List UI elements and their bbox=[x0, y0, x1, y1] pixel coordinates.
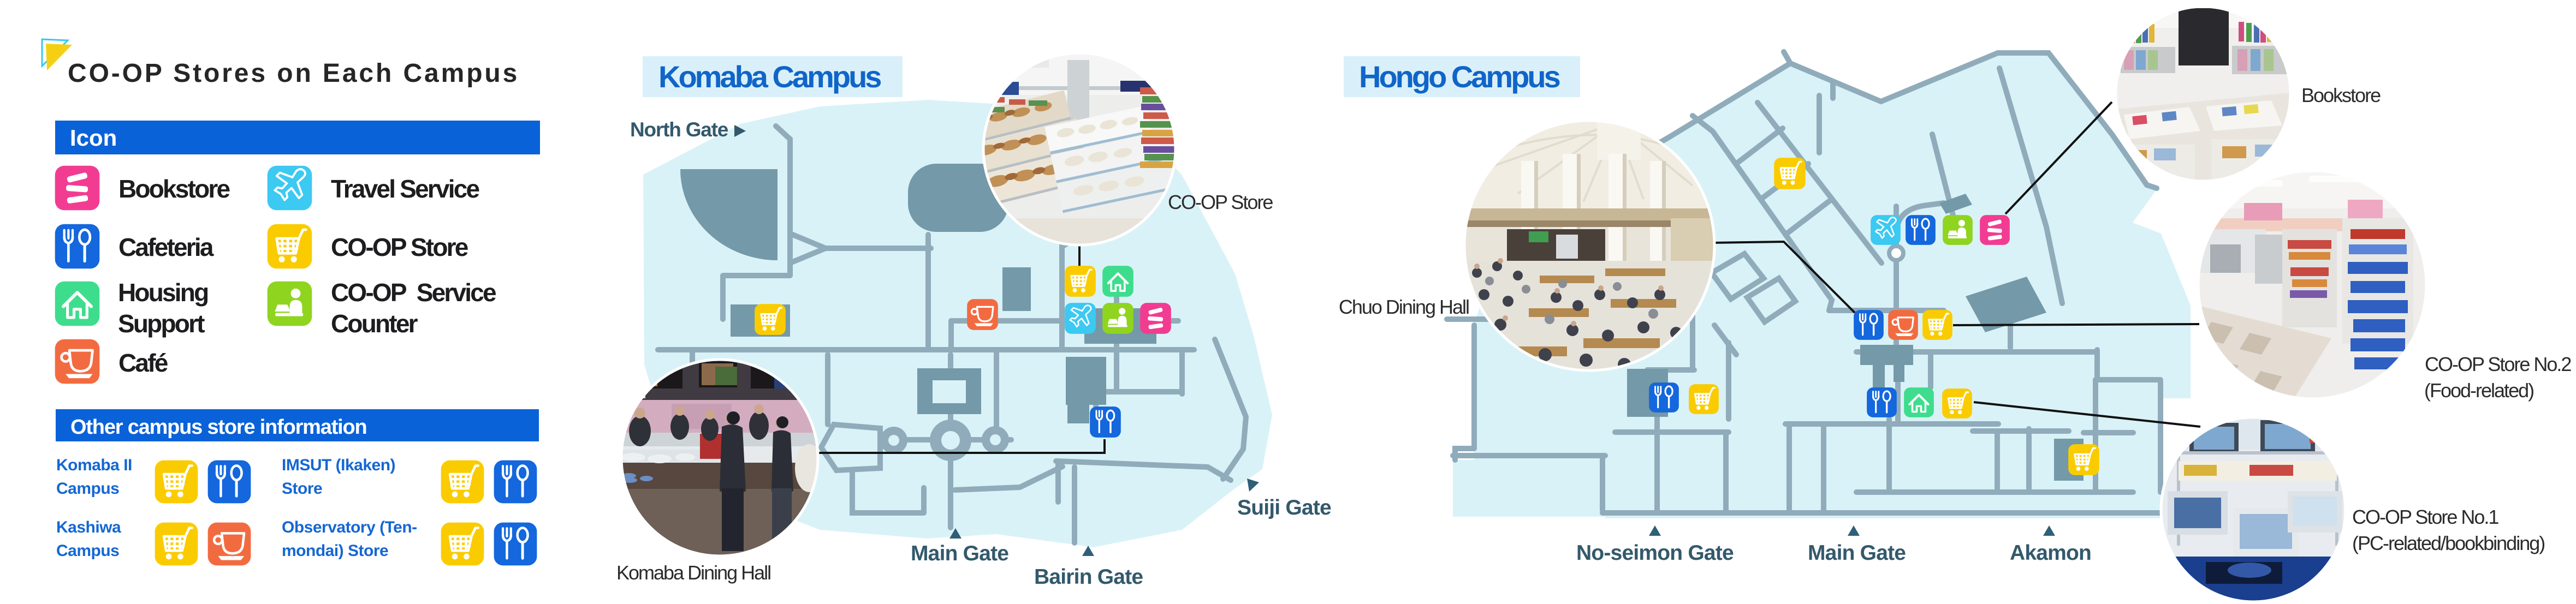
svg-text:CO-OP Store No.2: CO-OP Store No.2 bbox=[2425, 353, 2571, 375]
svg-text:Café: Café bbox=[118, 349, 168, 377]
svg-text:Observatory (Ten-: Observatory (Ten- bbox=[282, 518, 417, 536]
svg-text:Support: Support bbox=[118, 309, 205, 338]
svg-text:Main Gate: Main Gate bbox=[911, 542, 1008, 565]
svg-text:CO-OP Stores on Each Campus: CO-OP Stores on Each Campus bbox=[68, 59, 519, 88]
svg-text:CO-OP Store No.1: CO-OP Store No.1 bbox=[2352, 506, 2498, 528]
svg-text:Other campus store information: Other campus store information bbox=[70, 416, 367, 439]
svg-text:Store: Store bbox=[282, 480, 322, 498]
svg-text:Suiji Gate: Suiji Gate bbox=[1237, 496, 1331, 519]
svg-text:No-seimon Gate: No-seimon Gate bbox=[1576, 541, 1734, 565]
svg-text:North Gate: North Gate bbox=[630, 118, 728, 141]
svg-text:(PC-related/bookbinding): (PC-related/bookbinding) bbox=[2352, 532, 2544, 554]
svg-text:Bookstore: Bookstore bbox=[118, 175, 230, 203]
svg-text:Akamon: Akamon bbox=[2010, 541, 2091, 565]
svg-text:Housing: Housing bbox=[118, 278, 208, 307]
svg-text:Campus: Campus bbox=[56, 542, 119, 560]
svg-text:Travel Service: Travel Service bbox=[331, 175, 479, 203]
svg-text:Campus: Campus bbox=[56, 480, 119, 498]
svg-text:IMSUT (Ikaken): IMSUT (Ikaken) bbox=[282, 456, 395, 474]
svg-text:Icon: Icon bbox=[70, 125, 117, 151]
svg-text:Cafeteria: Cafeteria bbox=[118, 233, 214, 261]
svg-text:Komaba Campus: Komaba Campus bbox=[658, 59, 881, 94]
svg-text:Counter: Counter bbox=[331, 309, 418, 338]
svg-text:CO-OP Service: CO-OP Service bbox=[331, 278, 496, 307]
svg-text:Hongo Campus: Hongo Campus bbox=[1359, 59, 1560, 94]
svg-text:Main Gate: Main Gate bbox=[1808, 541, 1906, 565]
svg-text:Bairin Gate: Bairin Gate bbox=[1034, 565, 1143, 589]
svg-text:Komaba II: Komaba II bbox=[56, 456, 132, 474]
svg-text:Chuo Dining Hall: Chuo Dining Hall bbox=[1339, 296, 1469, 318]
svg-text:(Food-related): (Food-related) bbox=[2424, 379, 2533, 402]
svg-text:mondai) Store: mondai) Store bbox=[282, 542, 388, 560]
svg-text:Komaba Dining Hall: Komaba Dining Hall bbox=[616, 561, 770, 584]
svg-text:Kashiwa: Kashiwa bbox=[56, 518, 121, 536]
svg-text:Bookstore: Bookstore bbox=[2301, 84, 2381, 106]
svg-text:CO-OP Store: CO-OP Store bbox=[331, 233, 468, 261]
svg-text:CO-OP Store: CO-OP Store bbox=[1168, 191, 1273, 213]
